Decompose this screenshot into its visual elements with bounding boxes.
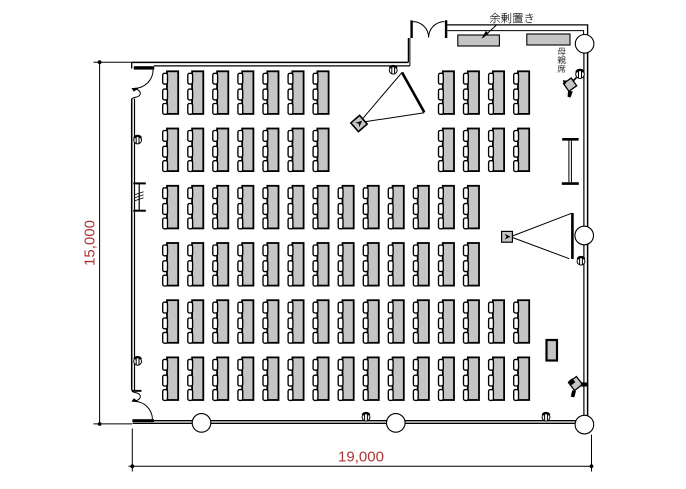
svg-text:15,000: 15,000 bbox=[82, 220, 99, 266]
svg-text:19,000: 19,000 bbox=[338, 448, 384, 465]
